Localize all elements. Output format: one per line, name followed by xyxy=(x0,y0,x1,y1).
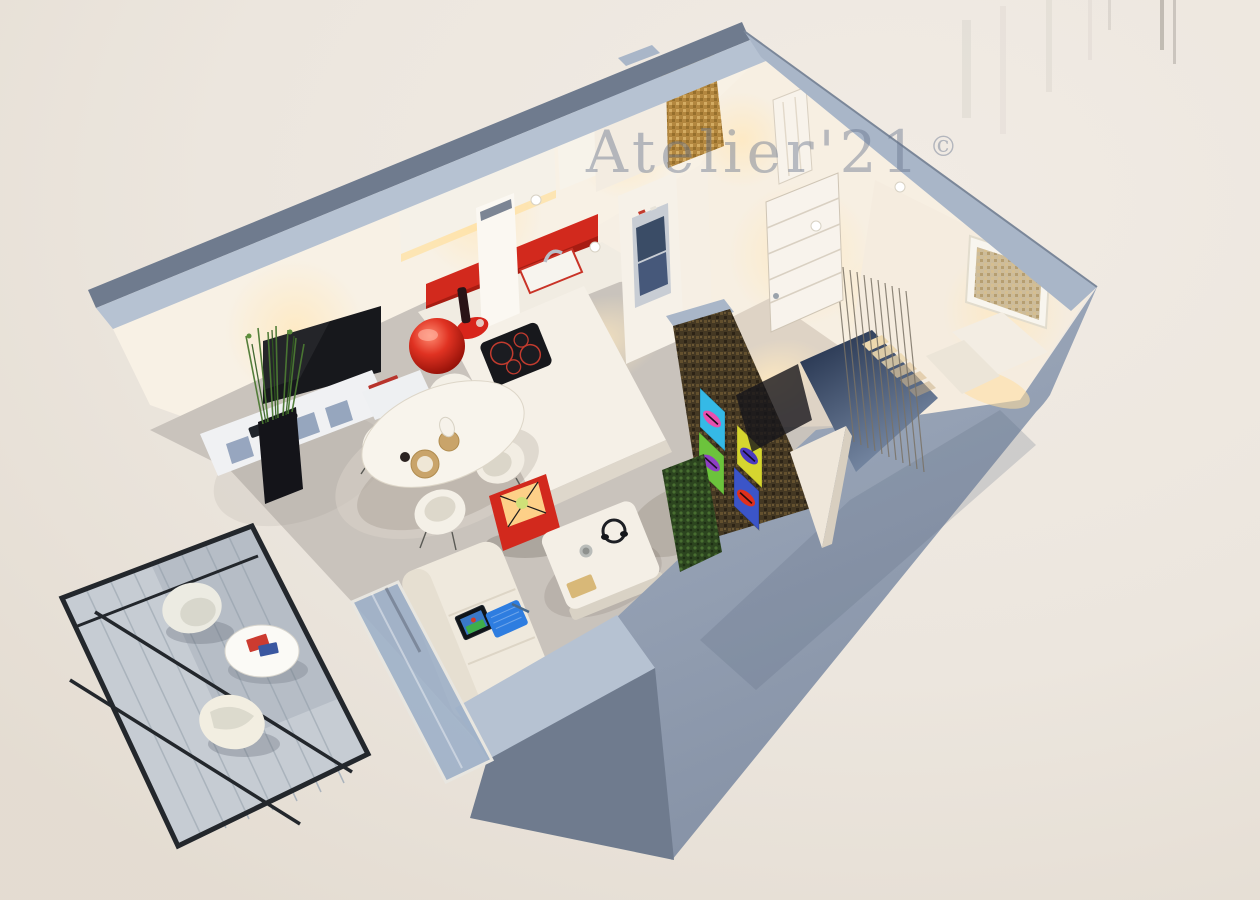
black-planter xyxy=(258,407,303,504)
door-handle xyxy=(773,293,779,299)
red-ball-pendant-lamp xyxy=(409,318,465,374)
apartment-3d-render: Atelier'21© xyxy=(0,0,1260,900)
watermark: Atelier'21© xyxy=(585,118,962,186)
render-canvas: Atelier'21© xyxy=(0,0,1260,900)
built-in-oven xyxy=(632,203,671,308)
